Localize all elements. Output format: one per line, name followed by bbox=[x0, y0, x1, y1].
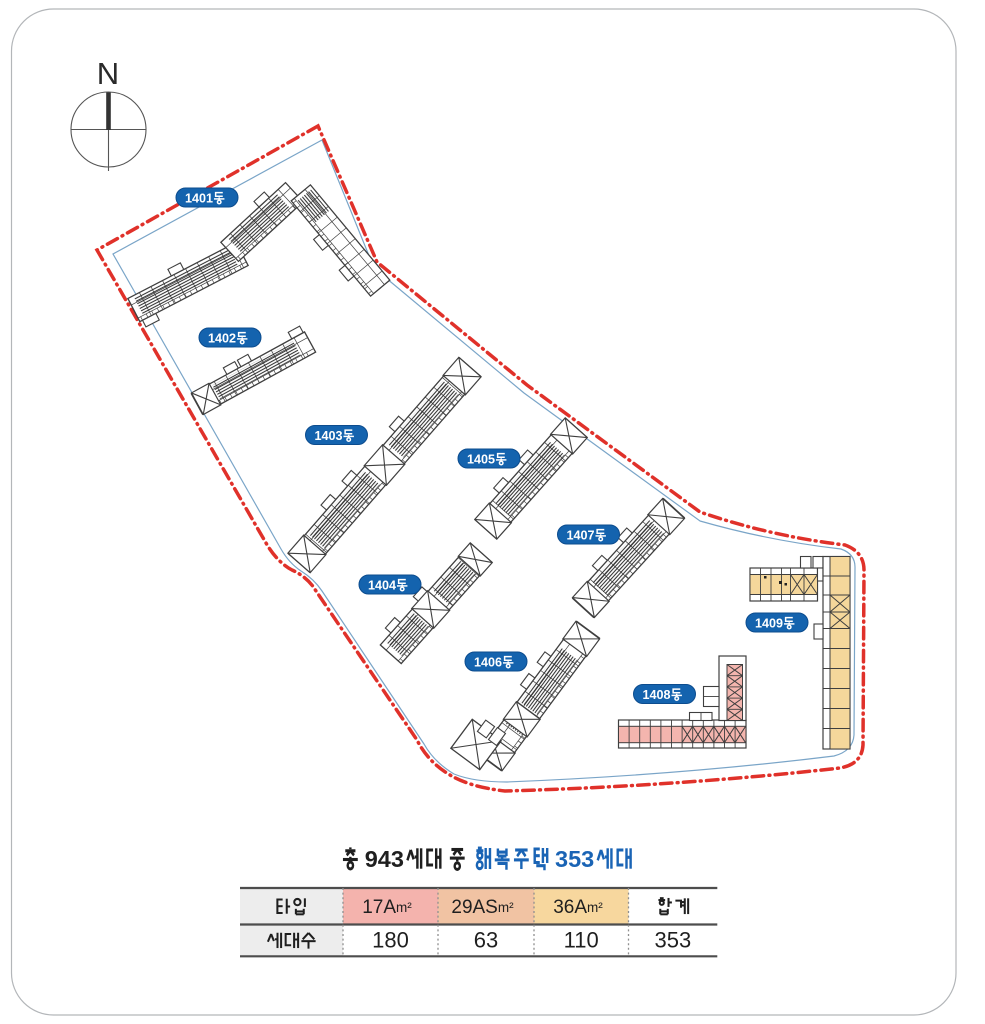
svg-text:1405: 1405 bbox=[467, 452, 495, 466]
svg-text:1408: 1408 bbox=[642, 688, 670, 702]
svg-text:29ASm²: 29ASm² bbox=[451, 897, 514, 918]
svg-text:1401: 1401 bbox=[185, 191, 213, 205]
svg-text:1409: 1409 bbox=[755, 616, 783, 630]
svg-text:943: 943 bbox=[365, 846, 404, 872]
svg-text:17Am²: 17Am² bbox=[362, 897, 412, 918]
svg-text:63: 63 bbox=[474, 927, 498, 952]
svg-text:180: 180 bbox=[372, 927, 409, 952]
svg-text:353: 353 bbox=[555, 846, 594, 872]
svg-text:1407: 1407 bbox=[566, 528, 594, 542]
svg-text:1404: 1404 bbox=[368, 578, 396, 592]
svg-text:1403: 1403 bbox=[314, 429, 342, 443]
svg-text:N: N bbox=[97, 56, 119, 91]
svg-text:353: 353 bbox=[655, 927, 692, 952]
svg-text:1402: 1402 bbox=[208, 331, 236, 345]
svg-text:110: 110 bbox=[564, 927, 599, 952]
svg-text:36Am²: 36Am² bbox=[553, 897, 603, 918]
svg-text:1406: 1406 bbox=[474, 655, 502, 669]
